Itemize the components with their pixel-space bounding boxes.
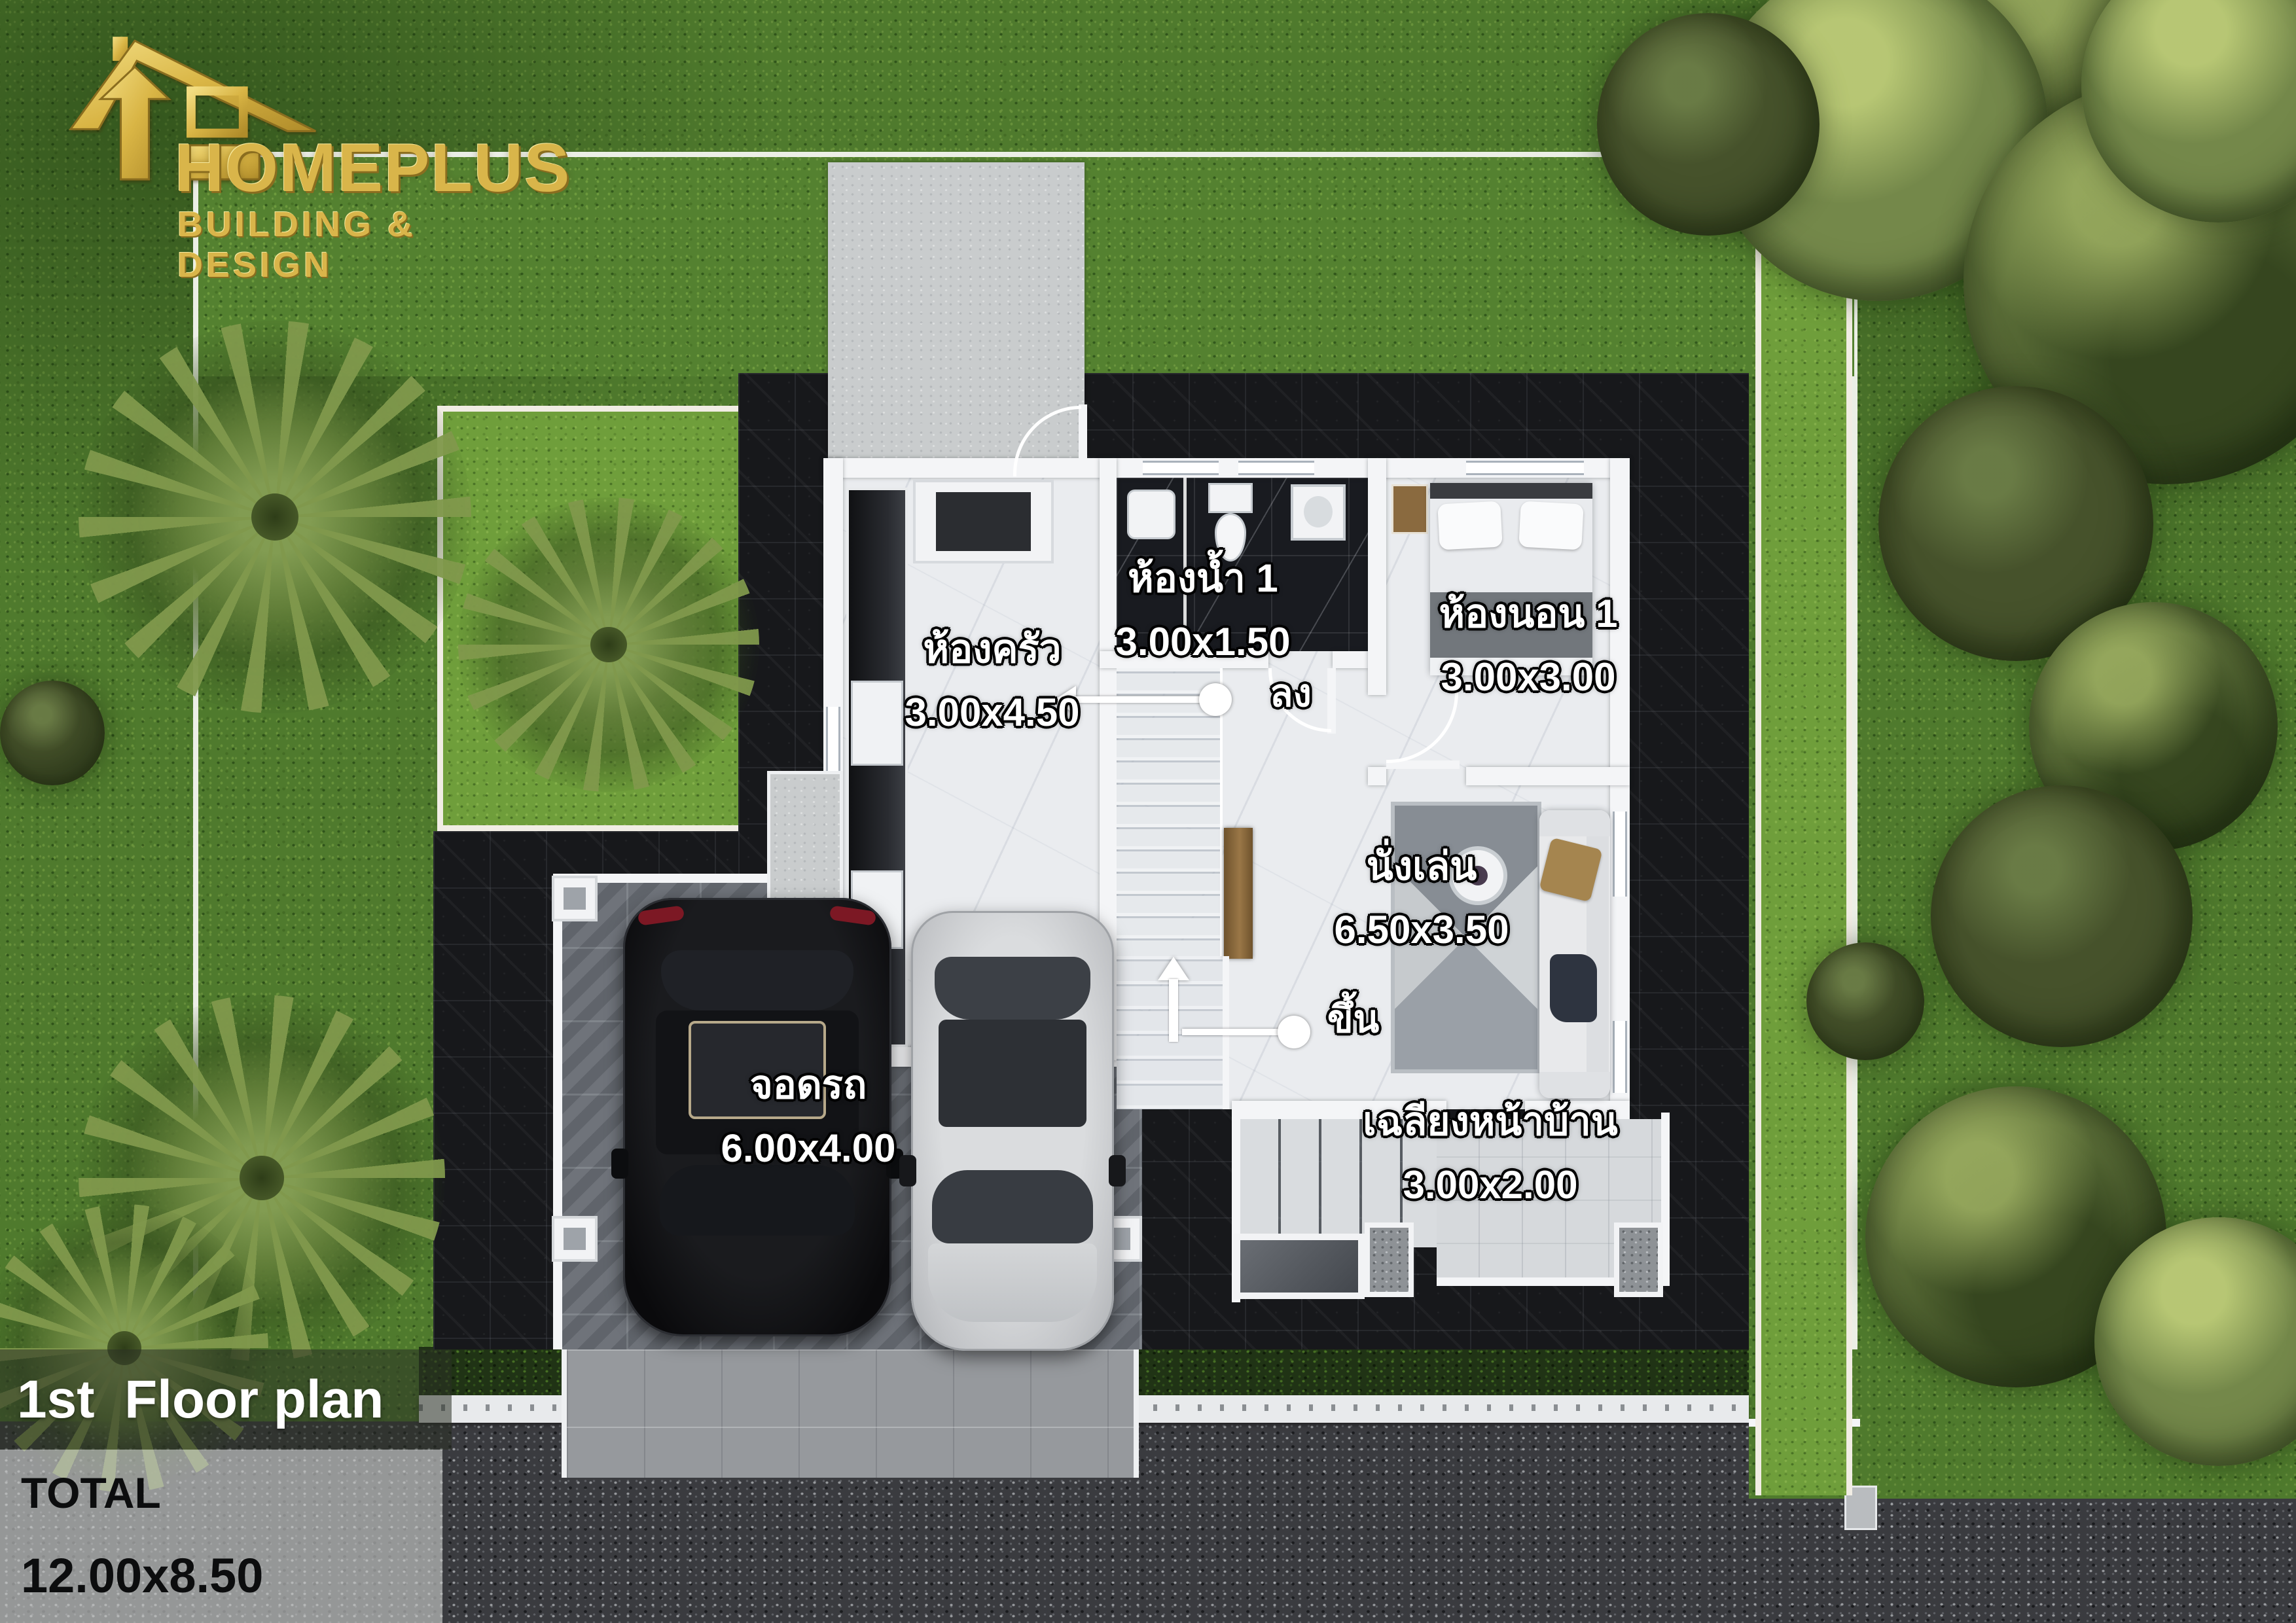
bed-pillow-left (1437, 501, 1503, 550)
up-leader-dot (1278, 1016, 1310, 1048)
car-silver-roof-panel (939, 1020, 1086, 1127)
down-leader-line (1075, 696, 1206, 703)
logo-tagline: BUILDING & DESIGN (177, 204, 560, 285)
total-size: 12.00x8.50 (21, 1548, 263, 1603)
kitchen-name: ห้องครัว (905, 628, 1080, 669)
kitchen-island-cooktop (936, 492, 1031, 551)
homeplus-logo: HOMEPLUS BUILDING & DESIGN (62, 26, 560, 288)
stair-handrail (1224, 828, 1253, 959)
down-leader-dot (1199, 683, 1232, 716)
bath-basin (1127, 490, 1175, 539)
stair-up-label: ขึ้น (1327, 1000, 1379, 1040)
tree-round (1931, 785, 2193, 1047)
floor-plan-render: ห้องครัว 3.00x4.50 ห้องน้ำ 1 3.00x1.50 ห… (0, 0, 2296, 1623)
up-leader-line (1182, 1029, 1287, 1035)
bed-pillow-right (1518, 501, 1584, 550)
porch-column-right (1614, 1222, 1663, 1297)
car-silver-windshield (932, 1170, 1093, 1243)
toilet (1208, 483, 1253, 513)
stair-down-label: ลง (1270, 674, 1312, 714)
window-bedroom-north (1466, 461, 1584, 475)
car-black-windshield (660, 1165, 855, 1236)
porch-column-left (1365, 1222, 1414, 1297)
sofa-arm-bottom (1539, 1072, 1610, 1098)
bedroom-name: ห้องนอน 1 (1439, 593, 1618, 634)
palm-tree (79, 321, 471, 713)
bush-small (1806, 942, 1924, 1060)
wall-east (1610, 458, 1630, 1119)
bedroom-label: ห้องนอน 1 3.00x3.00 (1439, 593, 1618, 698)
wall-bedroom-south (1466, 767, 1630, 785)
living-label: นั่งเล่น 6.50x3.50 (1335, 846, 1509, 950)
floor-plan-title: 1st Floor plan (17, 1369, 384, 1431)
kitchen-sink (851, 681, 903, 766)
car-silver-hood (928, 1243, 1097, 1322)
driveway (562, 1349, 1139, 1478)
wall-bath-south2 (1333, 651, 1368, 668)
porch-label: เฉลียงหน้าบ้าน 3.00x2.00 (1363, 1101, 1618, 1205)
wall-bedroom-west (1368, 458, 1386, 695)
nightstand (1391, 484, 1428, 534)
carport-size: 6.00x4.00 (721, 1128, 896, 1169)
bedroom-size: 3.00x3.00 (1439, 656, 1618, 698)
carport-name: จอดรถ (721, 1064, 896, 1105)
stairs-up-arrow-head (1158, 957, 1189, 980)
bed-headboard (1430, 483, 1592, 499)
car-silver-mirror-right (1109, 1155, 1126, 1186)
road-asphalt-right (1749, 1499, 2296, 1623)
porch-size: 3.00x2.00 (1363, 1164, 1618, 1205)
stairs-up-arrow-shaft (1169, 979, 1178, 1042)
car-silver-mirror-left (899, 1155, 916, 1186)
total-bar: TOTAL 12.00x8.50 (0, 1450, 442, 1623)
stair-up-text: ขึ้น (1327, 1000, 1379, 1040)
logo-brand: HOMEPLUS (175, 130, 571, 207)
total-label: TOTAL (21, 1468, 161, 1518)
wall-bedroom-west2 (1368, 767, 1386, 785)
car-black-mirror-left (611, 1149, 628, 1179)
living-name: นั่งเล่น (1335, 846, 1509, 887)
sofa-arm-top (1539, 810, 1610, 836)
porch-name: เฉลียงหน้าบ้าน (1363, 1101, 1618, 1142)
bathroom-size: 3.00x1.50 (1116, 621, 1291, 662)
porch-planter (1234, 1234, 1365, 1299)
bathroom-name: ห้องน้ำ 1 (1116, 558, 1291, 599)
sofa-pillow-navy (1550, 954, 1597, 1022)
window-east-1 (1613, 811, 1627, 897)
carport-post-sw (552, 1216, 598, 1262)
bush (0, 681, 105, 785)
stair-down-text: ลง (1270, 674, 1312, 714)
carport-post-nw (552, 876, 598, 921)
window-east-2 (1613, 1021, 1627, 1093)
car-black-rear-window (661, 950, 853, 1010)
car-silver-rear-window (935, 957, 1090, 1020)
carport-edge-left (553, 874, 562, 1349)
palm-tree (458, 497, 759, 792)
kitchen-size: 3.00x4.50 (905, 692, 1080, 733)
window-bath-north (1143, 461, 1219, 475)
tree-canopy (1597, 13, 1820, 236)
bathroom-label: ห้องน้ำ 1 3.00x1.50 (1116, 558, 1291, 662)
carport-label: จอดรถ 6.00x4.00 (721, 1064, 896, 1169)
window-bath-north-2 (1238, 461, 1314, 475)
garden-bed-right (1755, 157, 1852, 1495)
floor-plan-title-bar: 1st Floor plan (0, 1349, 452, 1450)
living-size: 6.50x3.50 (1335, 909, 1509, 950)
kitchen-label: ห้องครัว 3.00x4.50 (905, 628, 1080, 733)
bath-sink-basin (1304, 496, 1333, 527)
